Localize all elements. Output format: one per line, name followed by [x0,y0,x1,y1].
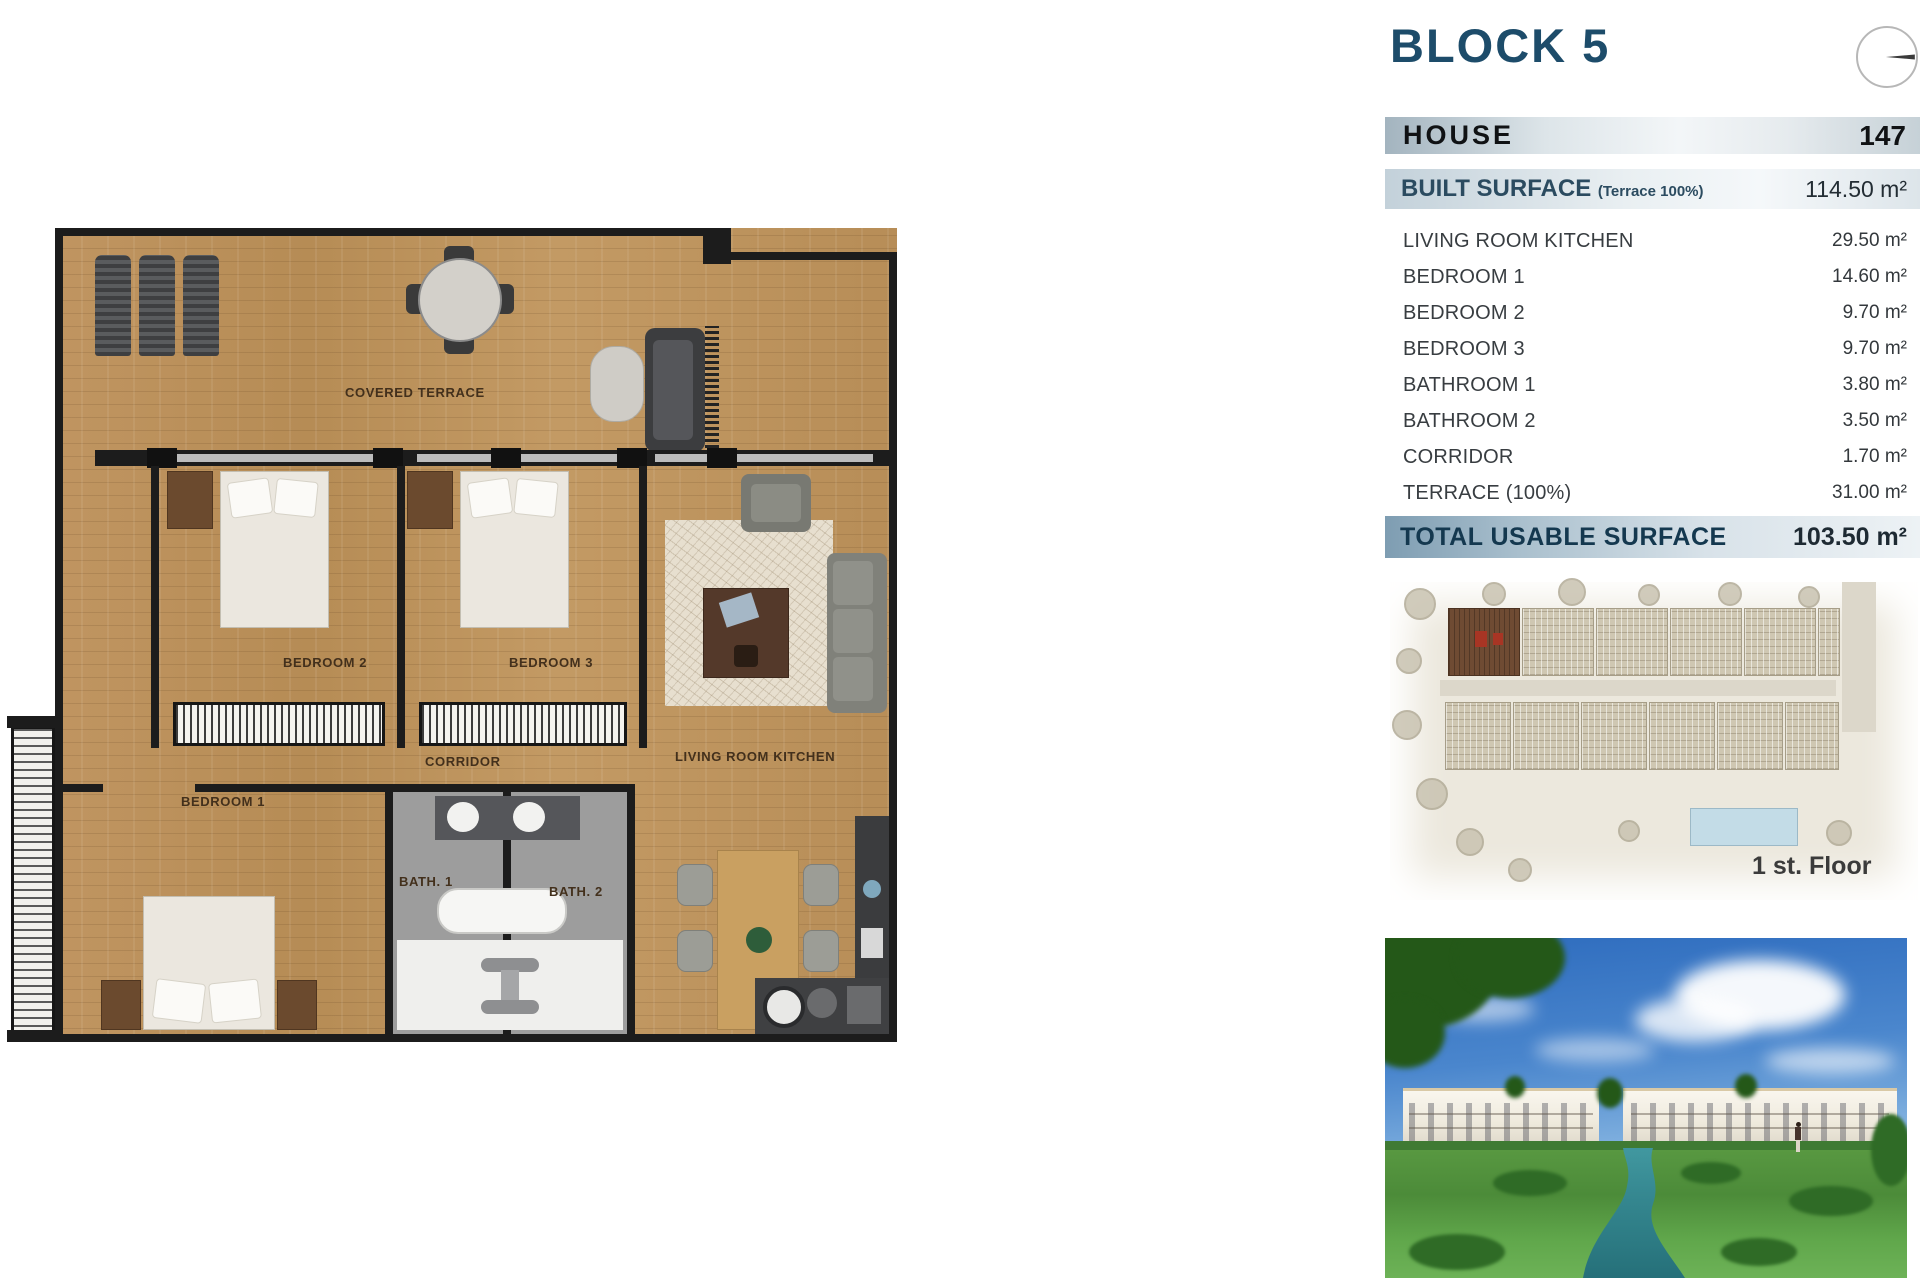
floor-plan: BEDROOM 2 BEDROOM 3 LIVING ROOM KITCHEN … [55,228,897,1042]
terrace-table [418,258,502,342]
surface-row-label: TERRACE (100%) [1385,482,1571,505]
surface-row-value: 31.00 m² [1832,482,1920,504]
brochure-page: BLOCK 5 HOUSE 147 BUILT SURFACE (Terrace… [0,0,1920,1280]
resort-photo [1385,938,1907,1278]
bathtub [437,888,567,934]
surface-row-value: 1.70 m² [1843,446,1920,468]
site-pool [1690,808,1798,846]
living-sofa [827,553,887,713]
bath1-label: BATH. 1 [399,874,453,889]
surface-rows: LIVING ROOM KITCHEN29.50 m²BEDROOM 114.6… [1385,223,1920,511]
terrace-pillar [703,228,731,264]
surface-row: CORRIDOR1.70 m² [1385,439,1920,475]
surface-row-label: BEDROOM 3 [1385,338,1525,361]
compass-icon [1856,26,1918,88]
kitchen-appliances [755,978,889,1034]
bedroom3-label: BEDROOM 3 [509,655,593,670]
surface-row-value: 9.70 m² [1843,302,1920,324]
block-title: BLOCK 5 [1390,18,1610,73]
site-plan: 1 st. Floor [1390,582,1918,900]
corridor-label: CORRIDOR [425,754,501,769]
bed [143,896,275,1030]
surface-row-label: BEDROOM 1 [1385,266,1525,289]
living-room-kitchen-label: LIVING ROOM KITCHEN [675,749,835,764]
surface-row: LIVING ROOM KITCHEN29.50 m² [1385,223,1920,259]
compass-needle-icon [1886,55,1915,60]
house-header-bar: HOUSE 147 [1385,117,1920,154]
bath2-label: BATH. 2 [549,884,603,899]
surface-row: BEDROOM 29.70 m² [1385,295,1920,331]
house-number: 147 [1859,120,1920,152]
covered-terrace-label: COVERED TERRACE [345,385,485,400]
built-surface-value: 114.50 m² [1805,176,1920,203]
surface-row: BEDROOM 114.60 m² [1385,259,1920,295]
surface-row-value: 29.50 m² [1832,230,1920,252]
golfer-figure [1789,1122,1809,1154]
surface-row: BATHROOM 13.80 m² [1385,367,1920,403]
house-label: HOUSE [1385,120,1514,151]
total-usable-value: 103.50 m² [1793,523,1920,552]
bedroom1-label: BEDROOM 1 [181,794,265,809]
living-armchair [741,474,811,532]
surface-row: TERRACE (100%)31.00 m² [1385,475,1920,511]
terrace-rug [590,346,644,422]
surface-row-label: BATHROOM 2 [1385,410,1536,433]
built-surface-label: BUILT SURFACE [1401,175,1591,202]
built-surface-note: (Terrace 100%) [1598,183,1704,200]
bedroom2-label: BEDROOM 2 [283,655,367,670]
surface-row-label: BATHROOM 1 [1385,374,1536,397]
surface-row: BEDROOM 39.70 m² [1385,331,1920,367]
total-usable-label: TOTAL USABLE SURFACE [1385,523,1727,552]
surface-row-label: BEDROOM 2 [1385,302,1525,325]
built-surface-bar: BUILT SURFACE (Terrace 100%) 114.50 m² [1385,169,1920,209]
surface-row: BATHROOM 23.50 m² [1385,403,1920,439]
surface-row-value: 3.50 m² [1843,410,1920,432]
site-highlighted-unit [1448,608,1520,676]
total-usable-bar: TOTAL USABLE SURFACE 103.50 m² [1385,516,1920,558]
surface-row-label: CORRIDOR [1385,446,1514,469]
surface-row-value: 9.70 m² [1843,338,1920,360]
site-plan-caption: 1 st. Floor [1752,852,1871,881]
surface-row-value: 14.60 m² [1832,266,1920,288]
bed [460,471,569,628]
shower-area [397,940,623,1030]
terrace-sofa [645,328,705,452]
bedroom1-window [11,726,55,1038]
surface-row-label: LIVING ROOM KITCHEN [1385,230,1634,253]
bath-vanity [435,796,580,840]
sofa-fringe [705,326,719,454]
bed [220,471,329,628]
surface-row-value: 3.80 m² [1843,374,1920,396]
site-road [1440,680,1836,696]
coffee-table [703,588,789,678]
